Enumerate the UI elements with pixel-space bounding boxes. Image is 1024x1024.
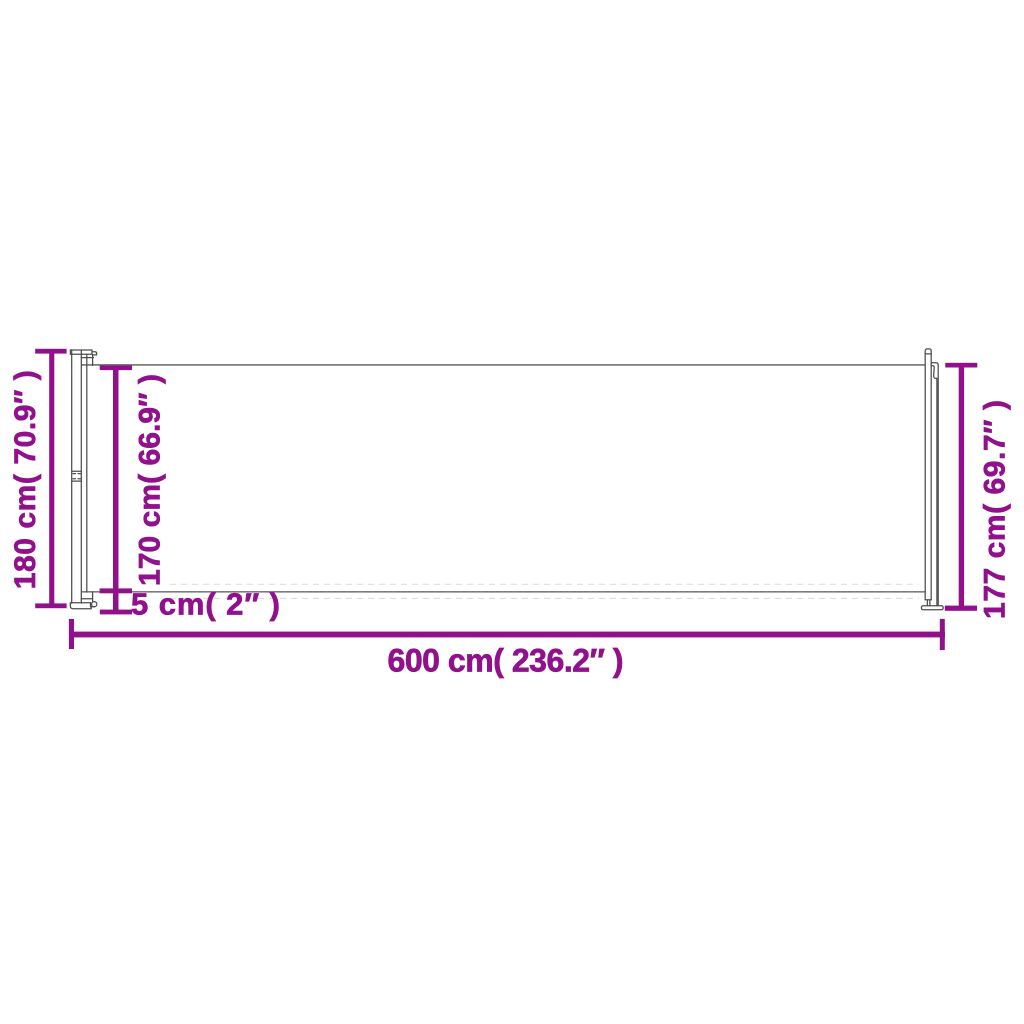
- svg-text:600 cm( 236.2″ ): 600 cm( 236.2″ ): [388, 643, 624, 679]
- svg-text:180 cm( 70.9″ ): 180 cm( 70.9″ ): [9, 370, 42, 589]
- svg-text:177 cm( 69.7″ ): 177 cm( 69.7″ ): [979, 400, 1012, 619]
- svg-text:5 cm( 2″ ): 5 cm( 2″ ): [131, 587, 280, 622]
- svg-text:170 cm( 66.9″ ): 170 cm( 66.9″ ): [134, 374, 167, 586]
